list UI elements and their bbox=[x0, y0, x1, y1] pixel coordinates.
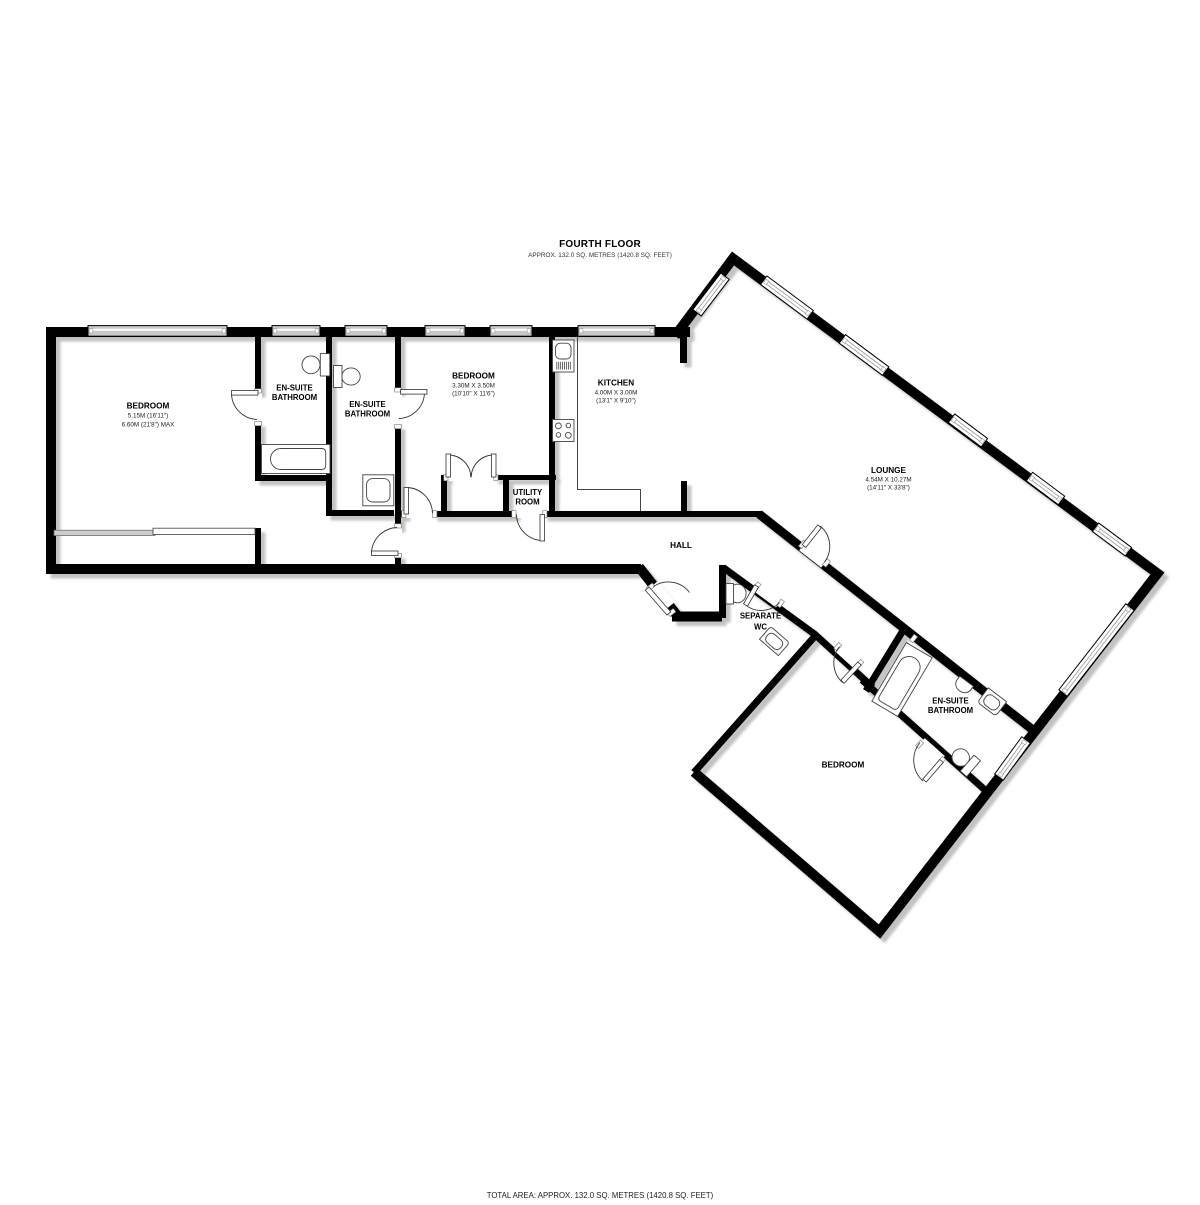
svg-text:SEPARATE: SEPARATE bbox=[740, 612, 781, 621]
svg-text:WC: WC bbox=[754, 623, 767, 632]
svg-text:(14'11" X 33'8"): (14'11" X 33'8") bbox=[867, 485, 910, 492]
svg-text:BATHROOM: BATHROOM bbox=[345, 410, 390, 419]
svg-text:(10'10" X 11'6"): (10'10" X 11'6") bbox=[452, 391, 495, 398]
svg-text:HALL: HALL bbox=[670, 541, 692, 550]
svg-text:5.15M (16'11"): 5.15M (16'11") bbox=[128, 413, 168, 420]
svg-text:BATHROOM: BATHROOM bbox=[272, 393, 317, 402]
svg-text:6.60M (21'8") MAX: 6.60M (21'8") MAX bbox=[122, 422, 176, 429]
svg-text:LOUNGE: LOUNGE bbox=[871, 466, 907, 475]
svg-text:4.00M X 3.00M: 4.00M X 3.00M bbox=[595, 390, 638, 397]
svg-text:TOTAL AREA: APPROX. 132.0 SQ.: TOTAL AREA: APPROX. 132.0 SQ. METRES (14… bbox=[487, 1191, 714, 1200]
svg-text:(13'1" X 9'10"): (13'1" X 9'10") bbox=[596, 398, 636, 405]
svg-text:BEDROOM: BEDROOM bbox=[127, 402, 170, 411]
svg-text:EN-SUITE: EN-SUITE bbox=[349, 400, 385, 409]
svg-text:APPROX. 132.0 SQ. METRES (1420: APPROX. 132.0 SQ. METRES (1420.8 SQ. FEE… bbox=[528, 252, 672, 259]
svg-text:FOURTH FLOOR: FOURTH FLOOR bbox=[559, 239, 641, 250]
svg-text:EN-SUITE: EN-SUITE bbox=[276, 384, 312, 393]
svg-text:4.54M X 10.27M: 4.54M X 10.27M bbox=[865, 477, 911, 484]
svg-text:ROOM: ROOM bbox=[515, 498, 539, 507]
svg-text:EN-SUITE: EN-SUITE bbox=[932, 697, 968, 706]
svg-text:BEDROOM: BEDROOM bbox=[452, 372, 495, 381]
svg-text:3.30M X 3.50M: 3.30M X 3.50M bbox=[452, 383, 495, 390]
svg-text:BATHROOM: BATHROOM bbox=[928, 706, 973, 715]
svg-text:UTILITY: UTILITY bbox=[513, 488, 543, 497]
svg-text:KITCHEN: KITCHEN bbox=[598, 379, 634, 388]
svg-text:BEDROOM: BEDROOM bbox=[822, 761, 865, 770]
